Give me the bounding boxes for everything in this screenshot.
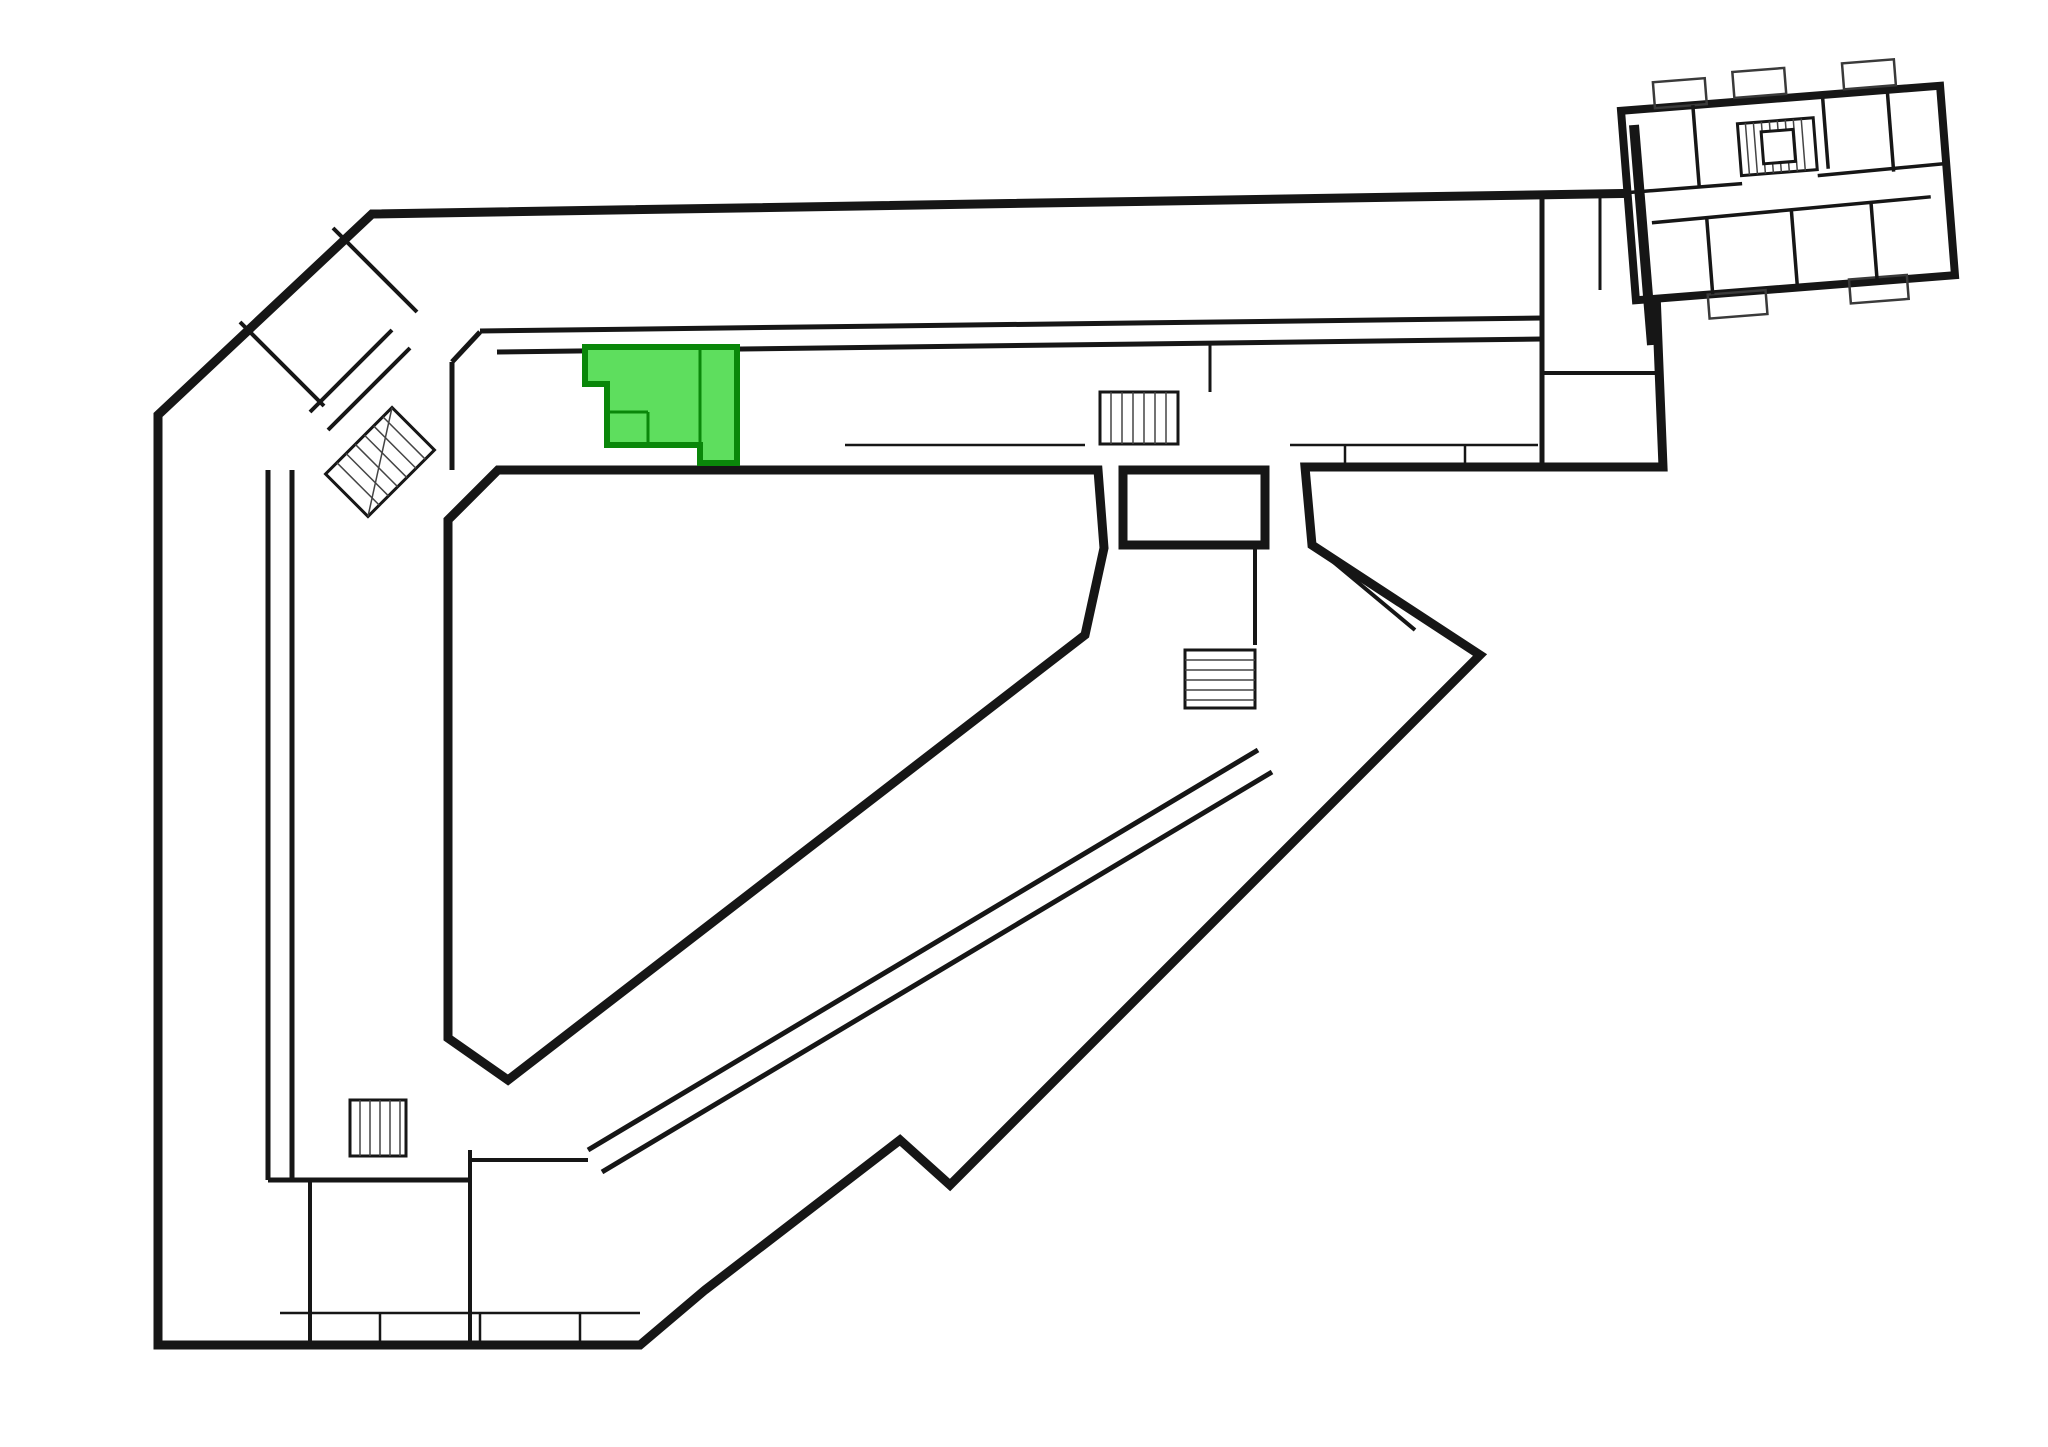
floor-plan-stage xyxy=(0,0,2048,1447)
room-labels-layer xyxy=(0,0,2048,1447)
